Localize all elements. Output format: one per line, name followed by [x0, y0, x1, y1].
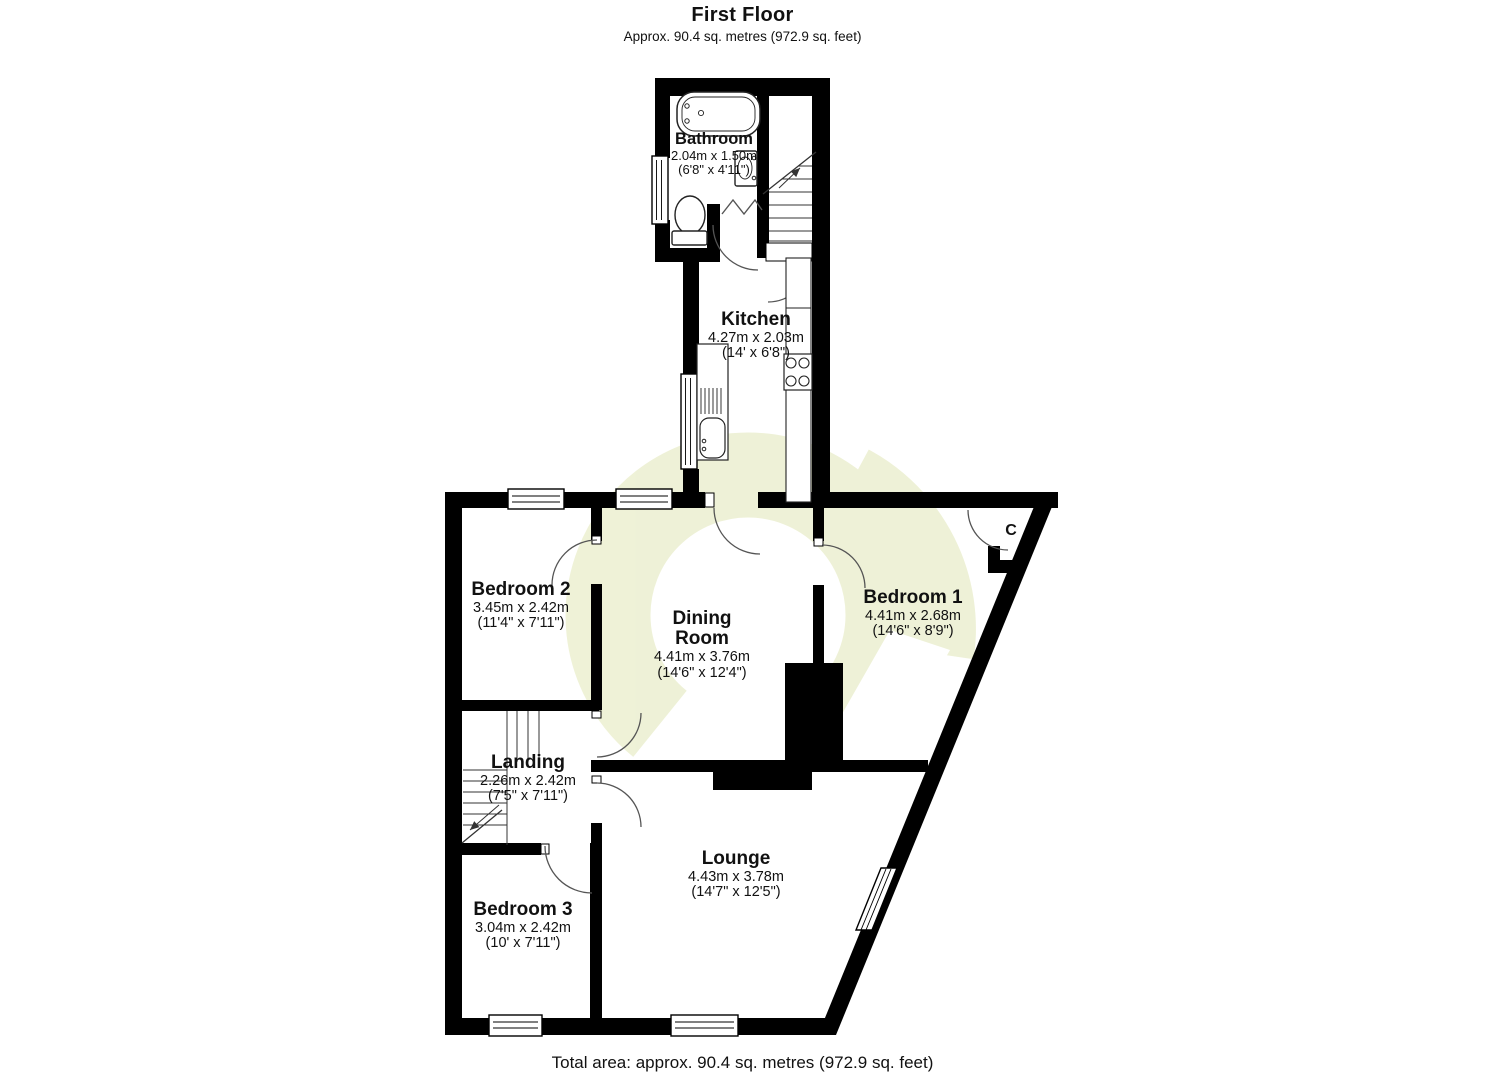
- chimney-breast: [785, 663, 843, 766]
- stairs-break-line: [462, 810, 502, 843]
- room-metric-dims: 4.27m x 2.03m: [666, 331, 846, 346]
- wall: [713, 766, 812, 790]
- room-metric-dims: 2.26m x 2.42m: [438, 774, 618, 789]
- window: [681, 374, 697, 469]
- room-name: Lounge: [646, 849, 826, 869]
- room-imperial-dims: (7'5" x 7'11"): [438, 789, 618, 804]
- wall: [812, 78, 830, 508]
- room-metric-dims: 4.43m x 3.78m: [646, 870, 826, 885]
- room-imperial-dims: (11'4" x 7'11"): [431, 616, 611, 631]
- door-jamb: [592, 711, 601, 718]
- cupboard-label: C: [996, 522, 1026, 540]
- window: [489, 1015, 542, 1036]
- room-metric-dims: 3.45m x 2.42m: [431, 601, 611, 616]
- room-label-kitchen: Kitchen 4.27m x 2.03m (14' x 6'8"): [666, 310, 846, 362]
- room-name: Kitchen: [666, 310, 846, 330]
- wall: [830, 492, 1058, 508]
- wall: [591, 823, 602, 845]
- room-metric-dims: 4.41m x 2.68m: [823, 609, 1003, 624]
- room-metric-dims: 4.41m x 3.76m: [612, 650, 792, 665]
- room-label-dining-room: Dining Room 4.41m x 3.76m (14'6" x 12'4"…: [612, 609, 792, 681]
- window: [616, 489, 672, 509]
- wall: [813, 508, 824, 541]
- room-imperial-dims: (14'7" x 12'5"): [646, 885, 826, 900]
- wall: [655, 248, 708, 262]
- room-imperial-dims: (14'6" x 8'9"): [823, 624, 1003, 639]
- arrow-head-icon: [470, 821, 479, 830]
- room-name: Bedroom 2: [431, 580, 611, 600]
- room-name: Dining Room: [650, 609, 754, 649]
- window: [508, 489, 564, 509]
- room-label-lounge: Lounge 4.43m x 3.78m (14'7" x 12'5"): [646, 849, 826, 901]
- room-label-bathroom: Bathroom 2.04m x 1.50m (6'8" x 4'11"): [624, 131, 804, 177]
- door-jamb: [814, 538, 823, 546]
- room-metric-dims: 3.04m x 2.42m: [433, 921, 613, 936]
- door-jamb: [705, 493, 714, 507]
- wall: [462, 843, 541, 855]
- door-arc-bedroom3: [545, 846, 592, 893]
- wall: [462, 700, 599, 711]
- room-label-bedroom-3: Bedroom 3 3.04m x 2.42m (10' x 7'11"): [433, 900, 613, 952]
- room-name: Landing: [438, 753, 618, 773]
- room-label-bedroom-2: Bedroom 2 3.45m x 2.42m (11'4" x 7'11"): [431, 580, 611, 632]
- room-imperial-dims: (6'8" x 4'11"): [624, 163, 804, 177]
- page-title: First Floor: [0, 4, 1485, 27]
- room-label-landing: Landing 2.26m x 2.42m (7'5" x 7'11"): [438, 753, 618, 805]
- total-area-text: Total area: approx. 90.4 sq. metres (972…: [0, 1053, 1485, 1073]
- bifold-door-icon: [722, 200, 762, 214]
- room-name: Bedroom 1: [823, 588, 1003, 608]
- room-name: Bedroom 3: [433, 900, 613, 920]
- room-imperial-dims: (10' x 7'11"): [433, 936, 613, 951]
- room-label-bedroom-1: Bedroom 1 4.41m x 2.68m (14'6" x 8'9"): [823, 588, 1003, 640]
- page-subtitle: Approx. 90.4 sq. metres (972.9 sq. feet): [0, 29, 1485, 44]
- room-name: Bathroom: [624, 131, 804, 148]
- toilet-icon: [675, 196, 705, 234]
- room-imperial-dims: (14'6" x 12'4"): [612, 666, 792, 681]
- window: [671, 1015, 738, 1036]
- floorplan-page: First Floor Approx. 90.4 sq. metres (972…: [0, 0, 1485, 1080]
- kitchen-sink-bowl: [700, 418, 725, 458]
- room-imperial-dims: (14' x 6'8"): [666, 346, 846, 361]
- room-metric-dims: 2.04m x 1.50m: [624, 149, 804, 163]
